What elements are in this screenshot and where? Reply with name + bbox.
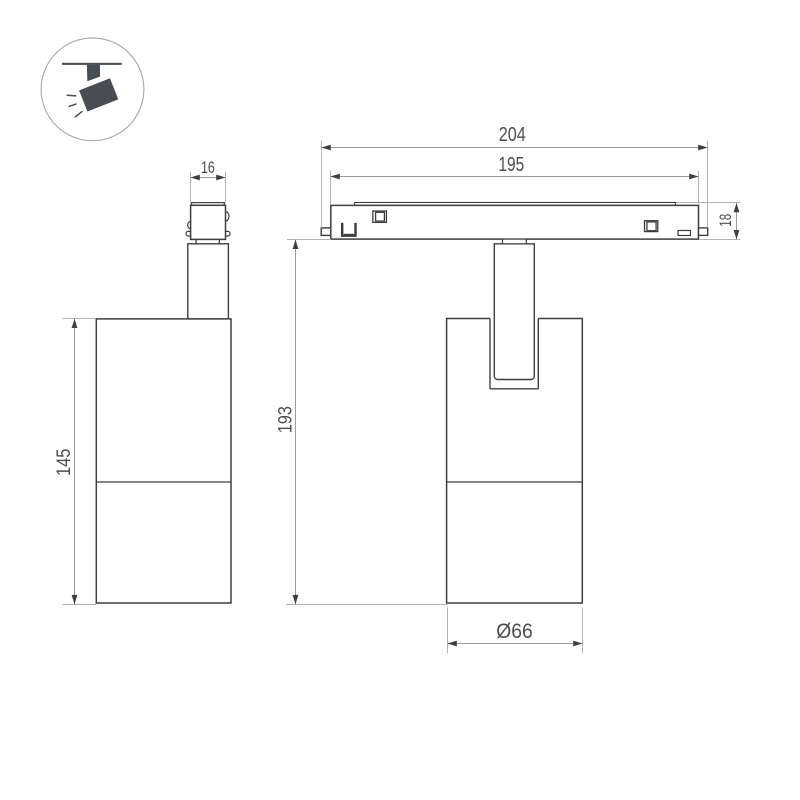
svg-text:195: 195	[498, 154, 524, 176]
svg-text:16: 16	[201, 158, 215, 177]
svg-text:Ø66: Ø66	[496, 620, 533, 643]
svg-text:193: 193	[274, 406, 296, 433]
svg-text:204: 204	[499, 124, 526, 146]
svg-text:145: 145	[53, 448, 75, 476]
svg-text:18: 18	[717, 214, 735, 227]
